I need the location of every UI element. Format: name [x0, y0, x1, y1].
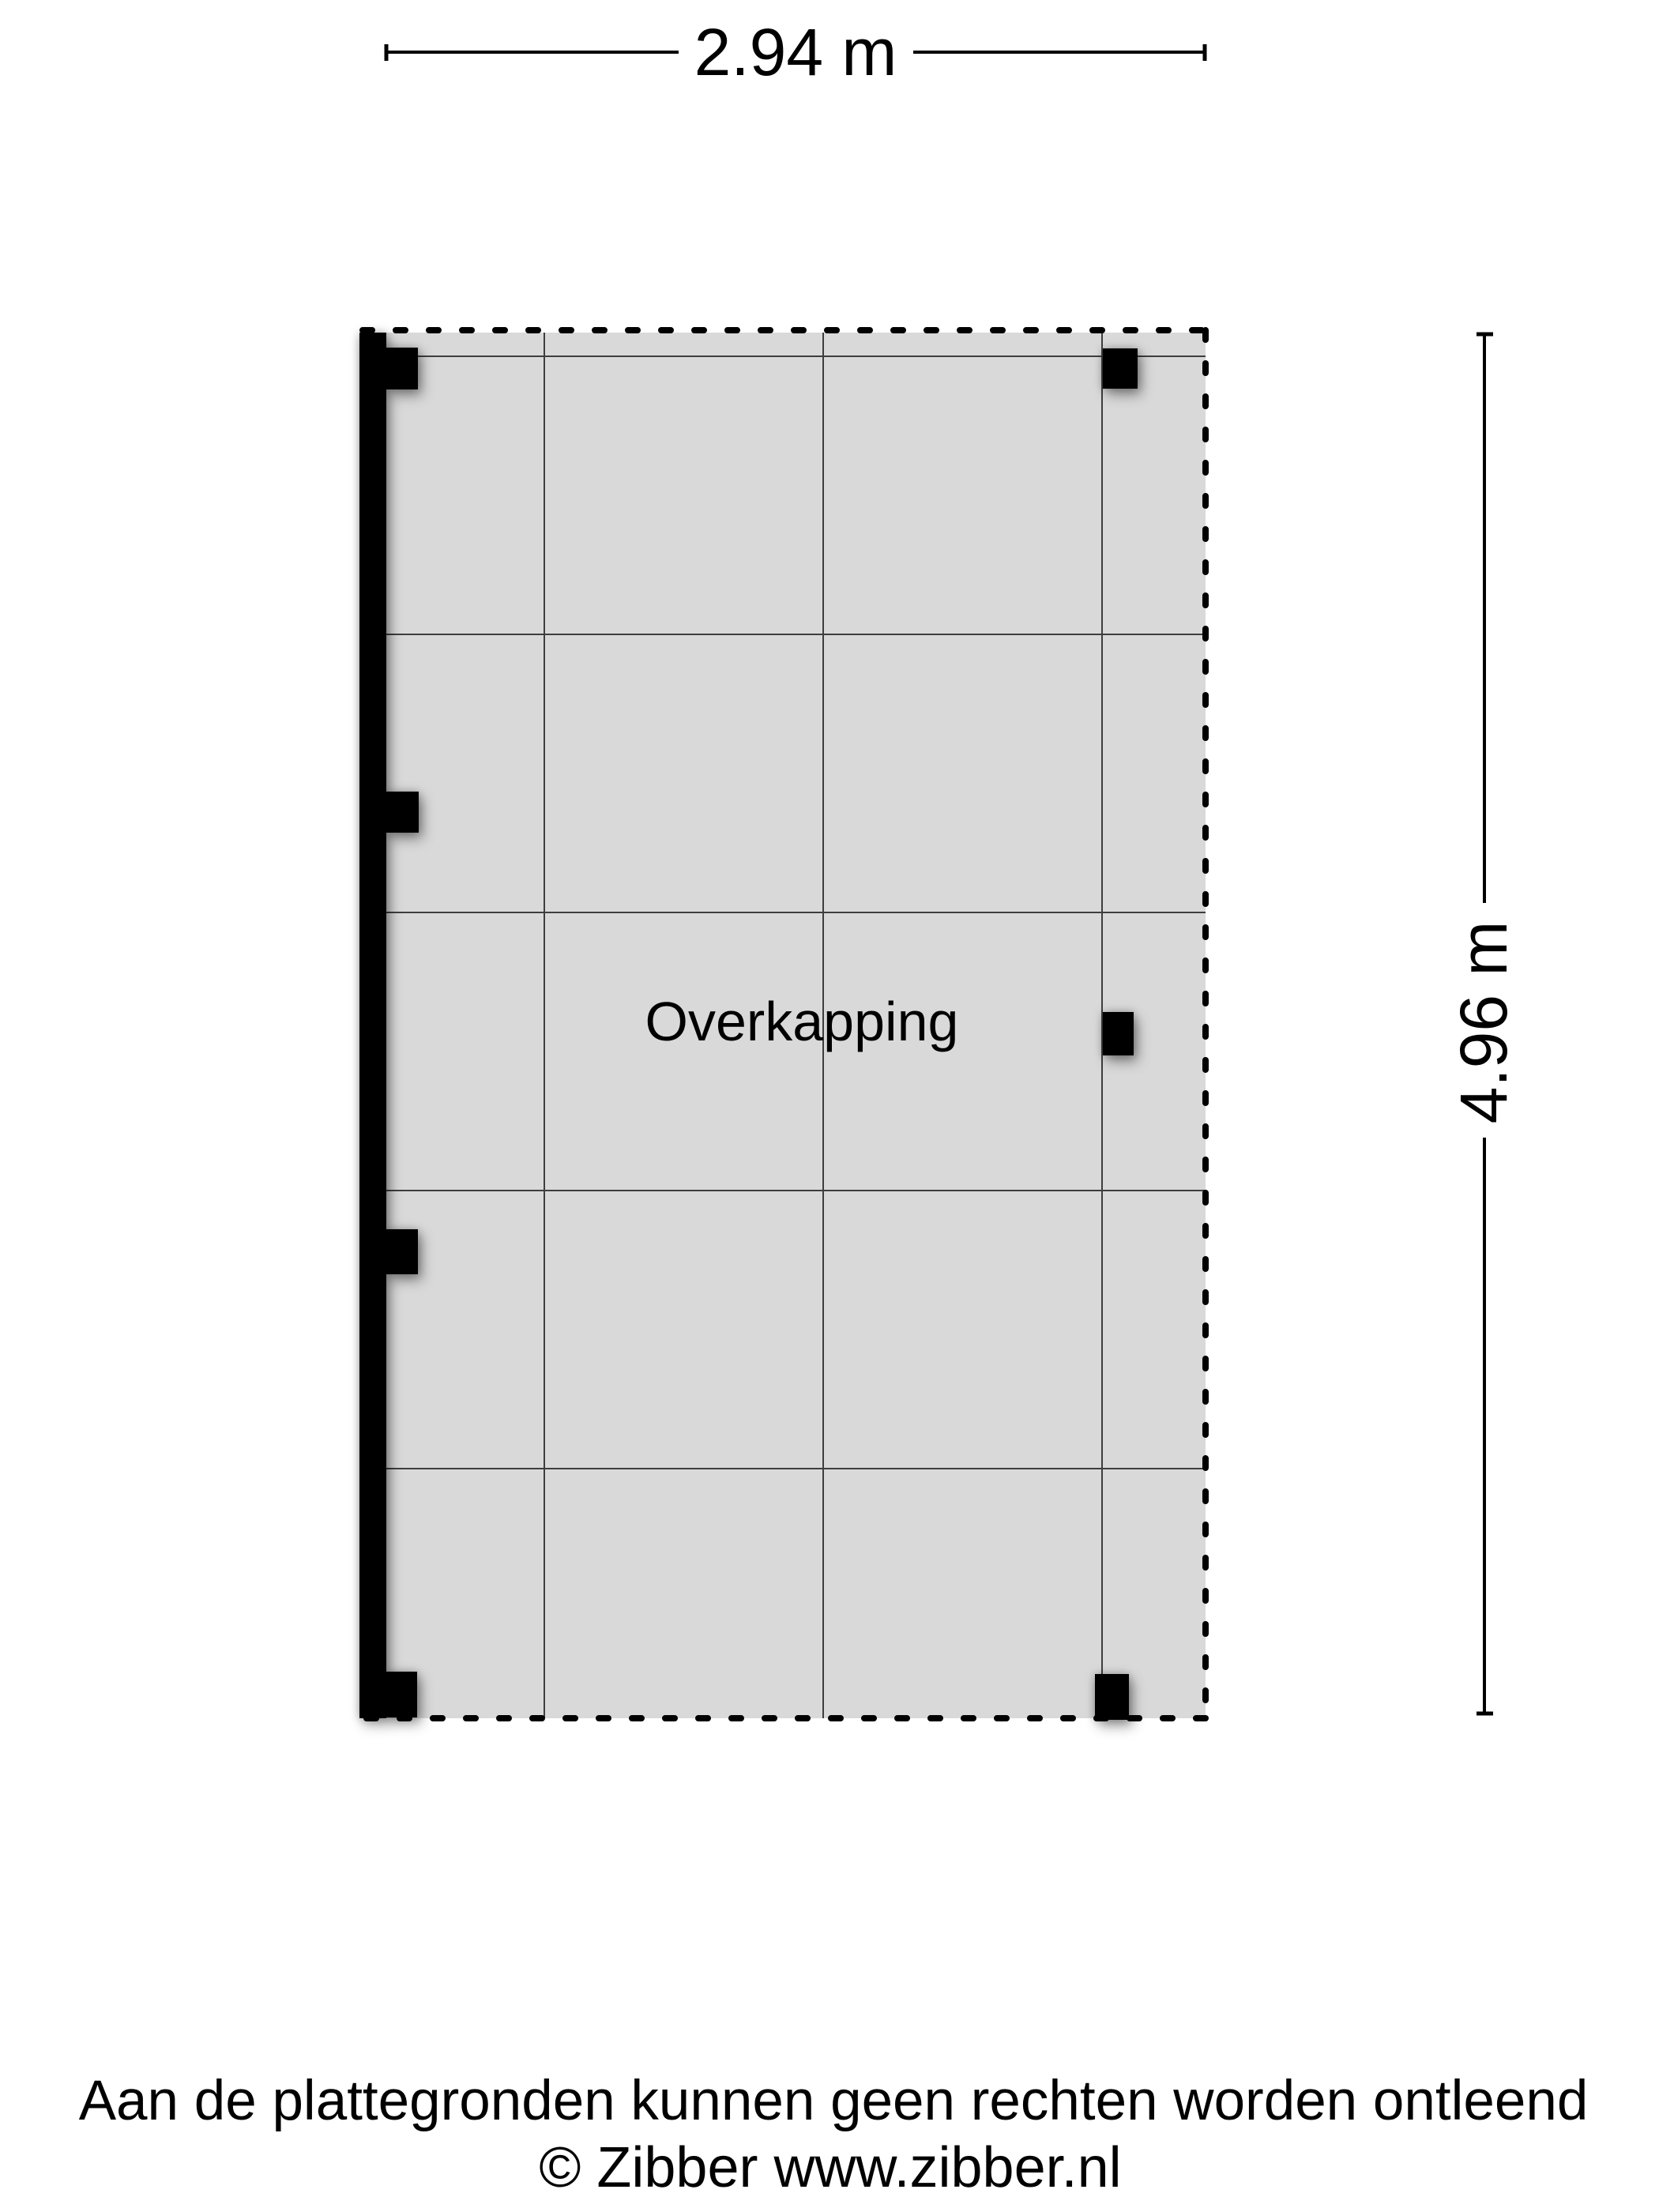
- svg-text:© Zibber www.zibber.nl: © Zibber www.zibber.nl: [539, 2136, 1121, 2199]
- svg-text:4.96 m: 4.96 m: [1446, 921, 1521, 1124]
- svg-text:Overkapping: Overkapping: [645, 991, 959, 1052]
- svg-text:2.94 m: 2.94 m: [694, 15, 897, 89]
- svg-text:Aan de plattegronden kunnen ge: Aan de plattegronden kunnen geen rechten…: [79, 2070, 1589, 2132]
